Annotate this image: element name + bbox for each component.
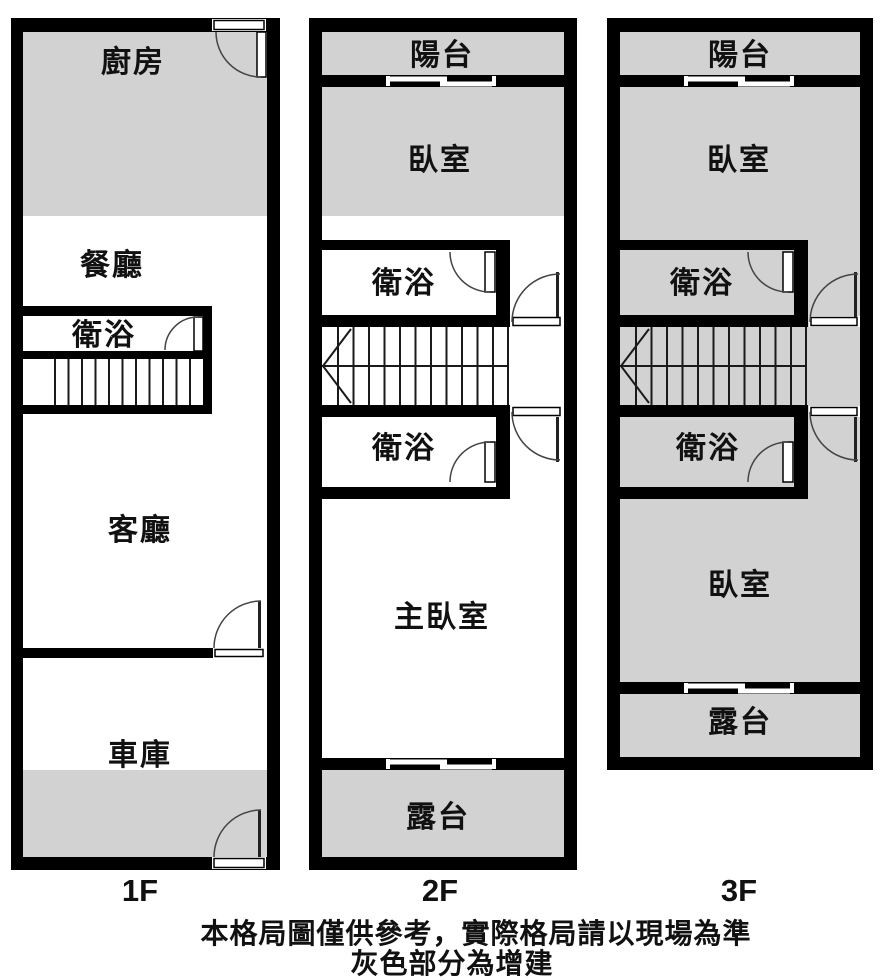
door-leaf	[783, 252, 793, 292]
disclaimer-caption: 本格局圖僅供參考，實際格局請以現場為準	[200, 917, 751, 949]
door-leaf	[485, 252, 495, 292]
door-leaf	[854, 417, 857, 462]
wall-segment	[322, 240, 510, 250]
window-pane	[390, 760, 447, 765]
room-label-bedroom: 臥室	[408, 143, 472, 177]
wall-segment	[496, 240, 510, 327]
floor-plan-image: 廚房 餐廳 衛浴 客廳 車庫 1F	[0, 0, 889, 980]
floor-2f: 陽台 臥室 衛浴 衛浴 主臥室 露台 2F	[309, 18, 577, 908]
door-leaf	[556, 272, 559, 317]
door-leaf	[257, 32, 266, 77]
wall-segment	[23, 351, 212, 359]
room-label-garage: 車庫	[108, 739, 172, 772]
room-label-bathroom-lower: 衛浴	[371, 432, 436, 465]
door-leaf	[556, 417, 559, 462]
wall-segment	[322, 315, 510, 327]
door-panel	[214, 859, 264, 868]
room-label-living: 客廳	[108, 513, 172, 547]
window-pane	[440, 765, 492, 770]
room-label-bathroom-lower: 衛浴	[675, 432, 740, 465]
room-label-kitchen: 廚房	[101, 45, 165, 79]
window-pane	[738, 689, 790, 694]
door-panel	[215, 650, 263, 657]
window-jamb	[684, 76, 688, 86]
wall-segment	[496, 405, 510, 499]
floor-label-3f: 3F	[721, 873, 757, 908]
wall-segment	[620, 315, 808, 327]
door-panel	[214, 21, 264, 30]
window-pane	[440, 82, 492, 87]
wall-segment	[794, 405, 808, 499]
door-panel	[513, 318, 560, 326]
wall-segment	[23, 648, 213, 658]
wall-segment	[23, 405, 212, 414]
room-label-balcony: 陽台	[410, 38, 474, 72]
door-leaf	[854, 272, 857, 317]
floor-plan-svg: 廚房 餐廳 衛浴 客廳 車庫 1F	[0, 0, 889, 980]
gray-area-note-caption: 灰色部分為增建	[350, 947, 553, 979]
wall-segment	[23, 306, 212, 316]
floor-label-2f: 2F	[422, 873, 458, 908]
door-leaf	[258, 810, 261, 857]
floor-1f: 廚房 餐廳 衛浴 客廳 車庫 1F	[11, 18, 280, 908]
room-label-bedroom-front: 臥室	[707, 143, 771, 177]
wall-segment	[620, 405, 808, 417]
room-label-terrace: 露台	[406, 800, 470, 834]
room-label-terrace: 露台	[708, 705, 772, 739]
wall-segment	[203, 306, 212, 414]
window-pane	[390, 77, 447, 82]
door-panel	[811, 318, 857, 326]
window-jamb	[790, 76, 794, 86]
window-pane	[688, 77, 745, 82]
room-label-bathroom-upper: 衛浴	[669, 267, 734, 300]
door-panel	[811, 408, 857, 416]
room-label-bathroom-upper: 衛浴	[371, 267, 436, 300]
window-jamb	[684, 683, 688, 693]
wall-segment	[322, 487, 510, 499]
room-label-bathroom: 衛浴	[71, 319, 136, 352]
wall-segment	[620, 487, 808, 499]
room-label-balcony: 陽台	[708, 38, 772, 72]
window-pane	[688, 684, 745, 689]
interior-addition	[620, 32, 860, 757]
wall-segment	[322, 405, 510, 417]
wall-segment	[794, 240, 808, 327]
wall-segment	[620, 240, 808, 250]
window-jamb	[790, 683, 794, 693]
garage-addition-area	[23, 770, 267, 857]
room-label-dining: 餐廳	[80, 248, 144, 282]
floor-label-1f: 1F	[122, 873, 158, 908]
window-pane	[738, 82, 790, 87]
room-label-master-bedroom: 主臥室	[394, 600, 490, 634]
door-leaf	[258, 601, 261, 648]
door-leaf	[783, 442, 793, 482]
window-jamb	[386, 76, 390, 86]
door-leaf	[194, 317, 203, 351]
window-jamb	[386, 759, 390, 769]
room-label-bedroom-rear: 臥室	[708, 568, 772, 602]
door-leaf	[485, 442, 495, 482]
window-jamb	[492, 759, 496, 769]
door-panel	[513, 408, 560, 416]
window-jamb	[492, 76, 496, 86]
